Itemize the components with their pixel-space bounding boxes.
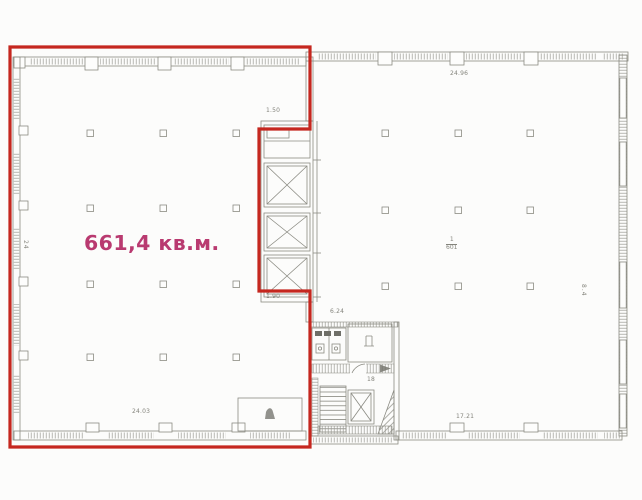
dim-right-unit-side: 8.4 bbox=[580, 284, 586, 297]
dim-notch-bottom: 1.90 bbox=[266, 294, 280, 300]
dim-notch-top: 1.50 bbox=[266, 108, 280, 114]
stair-elevator-icon bbox=[348, 390, 374, 424]
wc-room bbox=[312, 328, 346, 360]
elevator-shaft-icon bbox=[264, 213, 310, 251]
dim-right-unit-bottom: 17.21 bbox=[456, 414, 474, 420]
service-room bbox=[348, 324, 392, 362]
stairwell bbox=[312, 378, 394, 436]
right-unit-columns bbox=[382, 130, 534, 290]
right-unit-room-fraction: 1 601 bbox=[446, 237, 457, 252]
elevator-shaft-icon bbox=[264, 163, 310, 207]
area-label: 661,4 кв.м. bbox=[84, 231, 220, 255]
room-fixture-icon bbox=[265, 408, 275, 419]
dim-wc: 6.24 bbox=[330, 309, 344, 315]
room-area: 601 bbox=[446, 245, 457, 252]
right-unit-walls bbox=[306, 52, 628, 440]
floor-plan-image: 661,4 кв.м. 1.50 1.90 24.03 24 24.96 17.… bbox=[0, 0, 642, 500]
dim-left-unit-side: 24 bbox=[22, 240, 28, 250]
service-core bbox=[309, 322, 399, 444]
elevator-core bbox=[261, 121, 321, 302]
stair-label: 18 bbox=[367, 377, 375, 383]
dim-left-unit-bottom: 24.03 bbox=[132, 409, 150, 415]
dim-right-unit-top: 24.96 bbox=[450, 71, 468, 77]
